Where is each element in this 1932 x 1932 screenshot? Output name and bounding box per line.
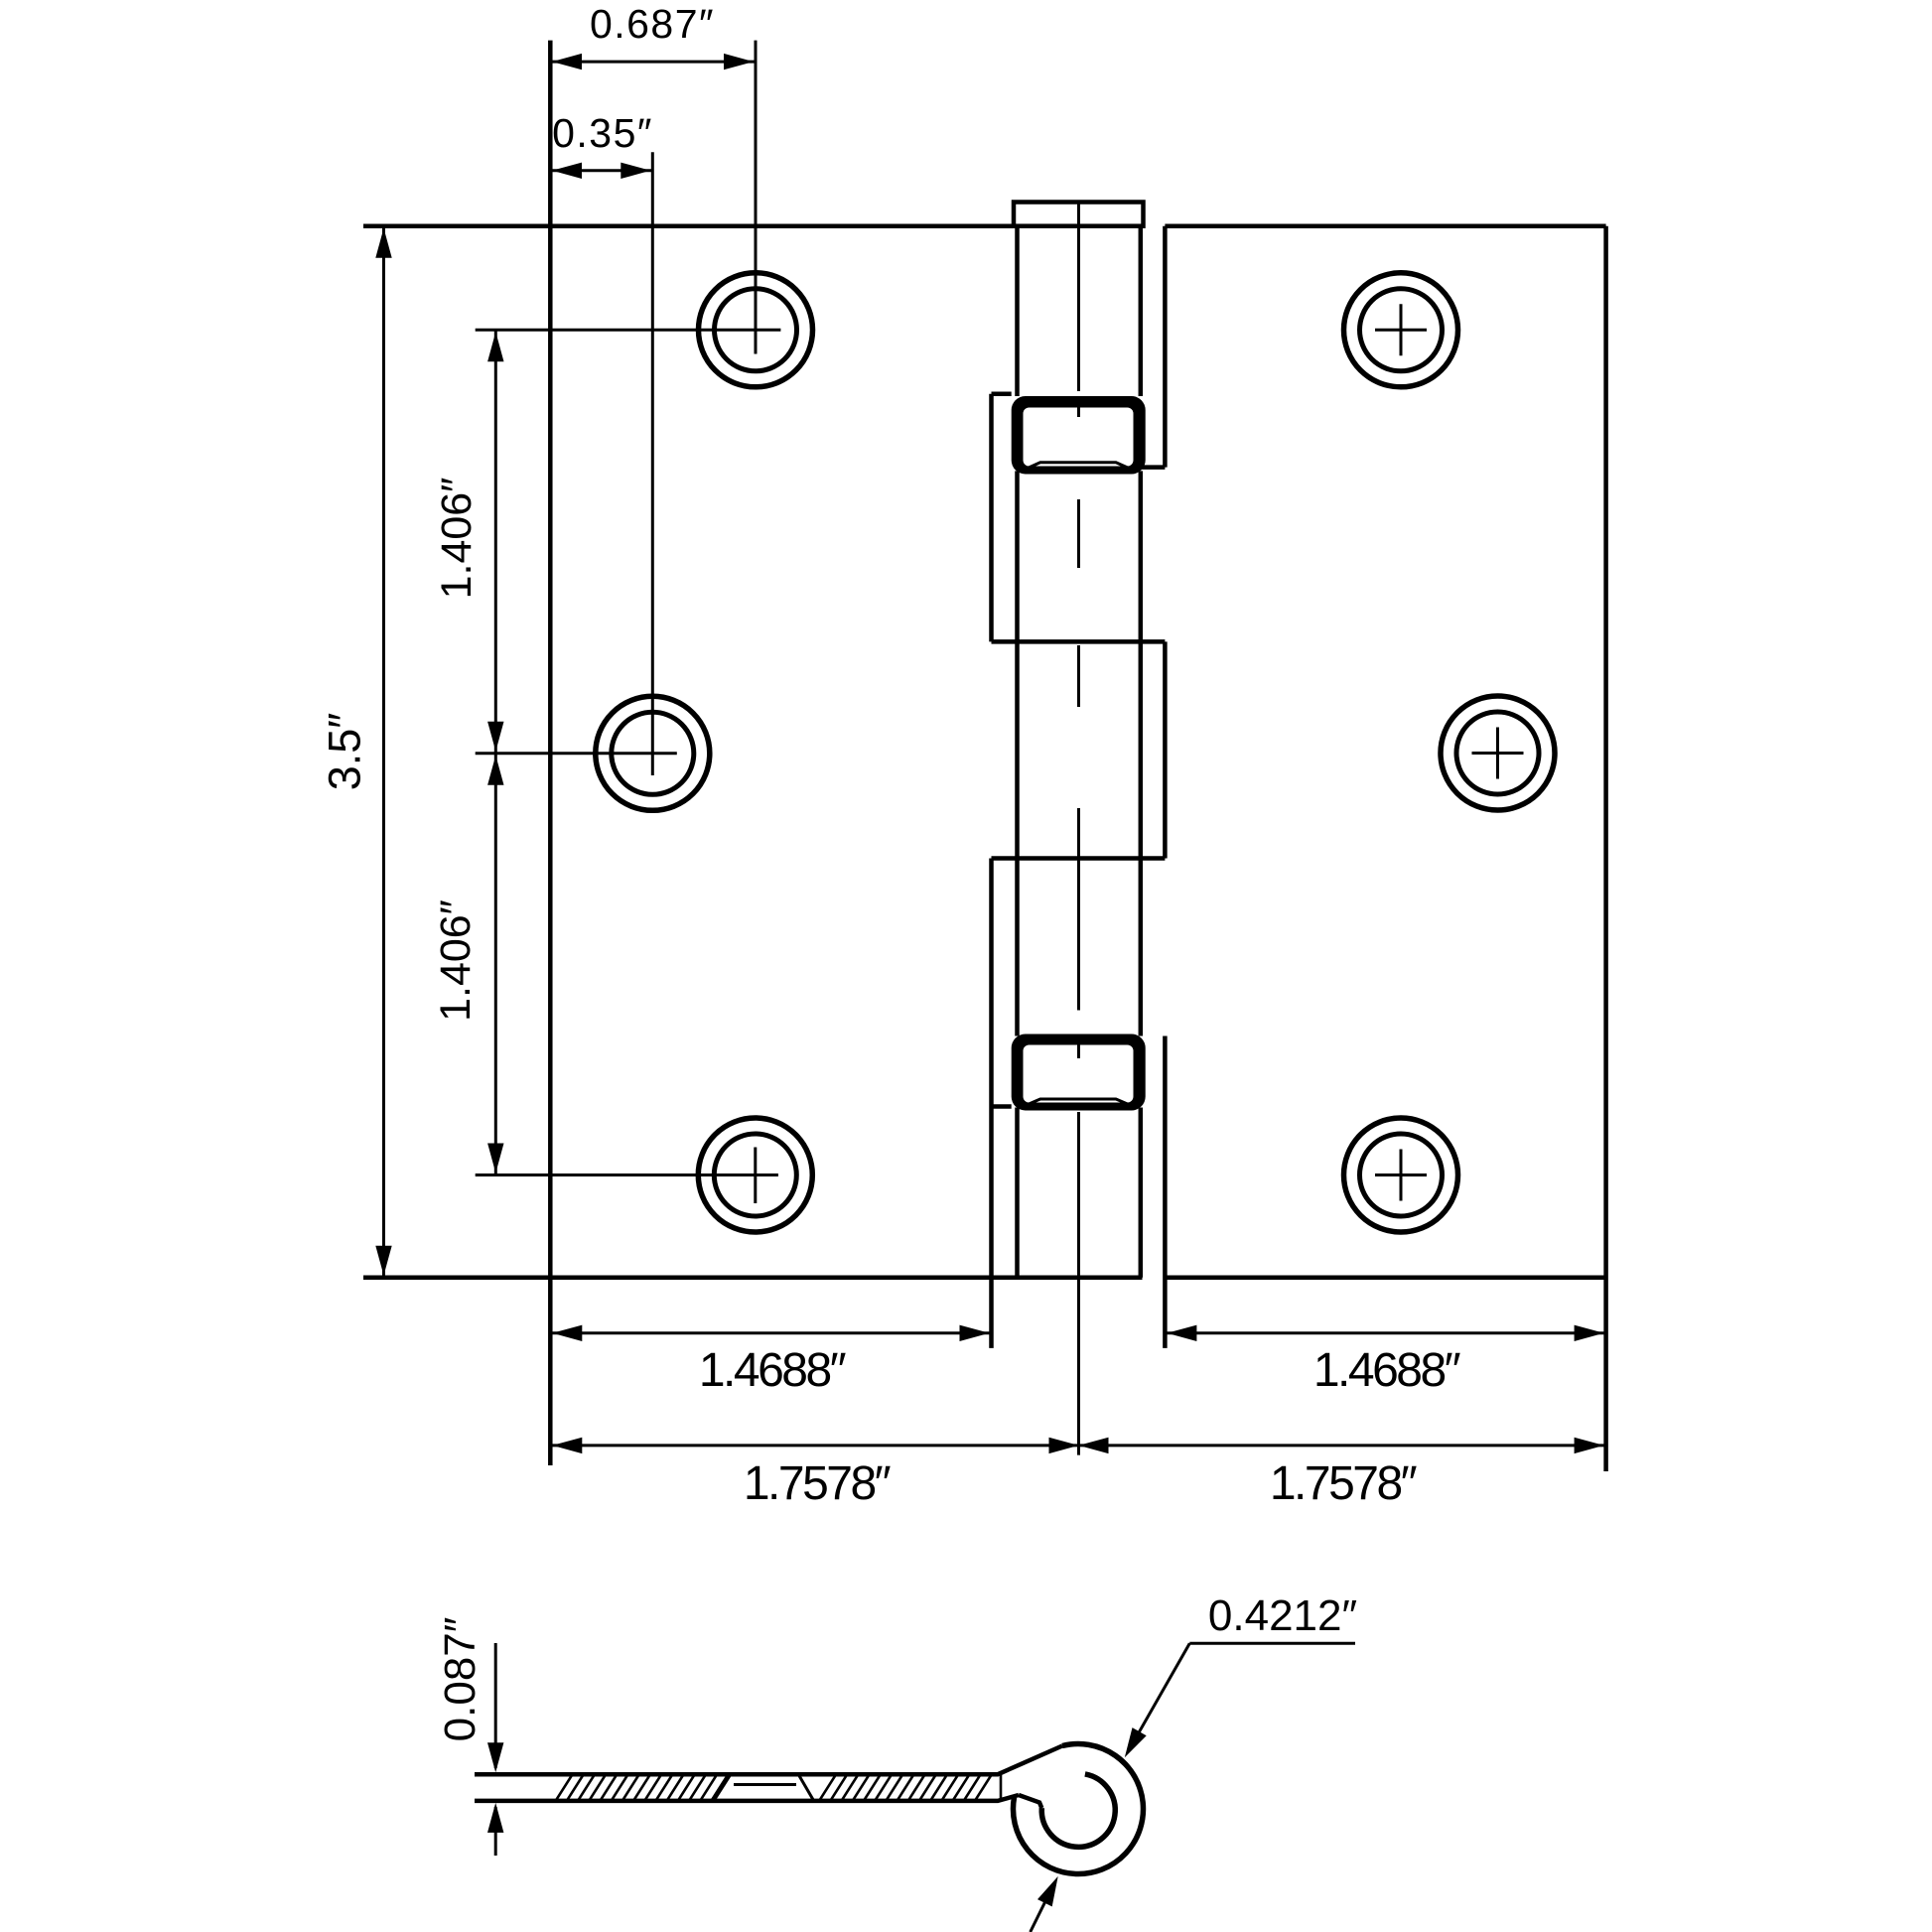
svg-text:0.4212″: 0.4212″ <box>1208 1591 1357 1640</box>
svg-text:3.5″: 3.5″ <box>320 713 370 791</box>
svg-text:1.4688″: 1.4688″ <box>699 1344 847 1397</box>
svg-text:1.7578″: 1.7578″ <box>744 1457 892 1510</box>
svg-text:0.35″: 0.35″ <box>552 110 653 156</box>
svg-text:1.406″: 1.406″ <box>433 478 481 600</box>
svg-text:1.7578″: 1.7578″ <box>1270 1457 1418 1510</box>
svg-text:0.687″: 0.687″ <box>590 1 715 47</box>
svg-text:1.4688″: 1.4688″ <box>1313 1344 1461 1397</box>
svg-text:0.087″: 0.087″ <box>436 1617 484 1742</box>
svg-text:1.406″: 1.406″ <box>432 899 480 1022</box>
